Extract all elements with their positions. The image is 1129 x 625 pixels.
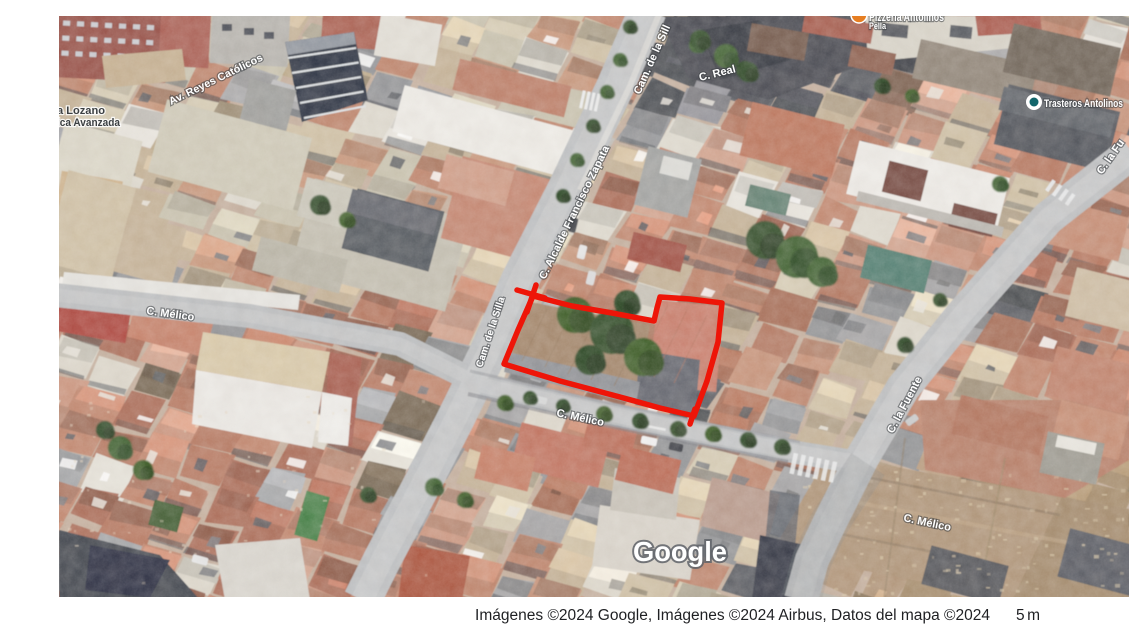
svg-text:Google: Google: [633, 536, 727, 567]
svg-text:5 m: 5 m: [1016, 607, 1040, 624]
svg-text:Imágenes ©2024 Google, Imágene: Imágenes ©2024 Google, Imágenes ©2024 Ai…: [475, 607, 990, 624]
svg-text:a Lozano: a Lozano: [57, 105, 105, 117]
svg-text:ica Avanzada: ica Avanzada: [57, 117, 121, 129]
svg-text:Pella: Pella: [869, 21, 887, 31]
svg-text:Trasteros Antolinos: Trasteros Antolinos: [1044, 98, 1123, 110]
